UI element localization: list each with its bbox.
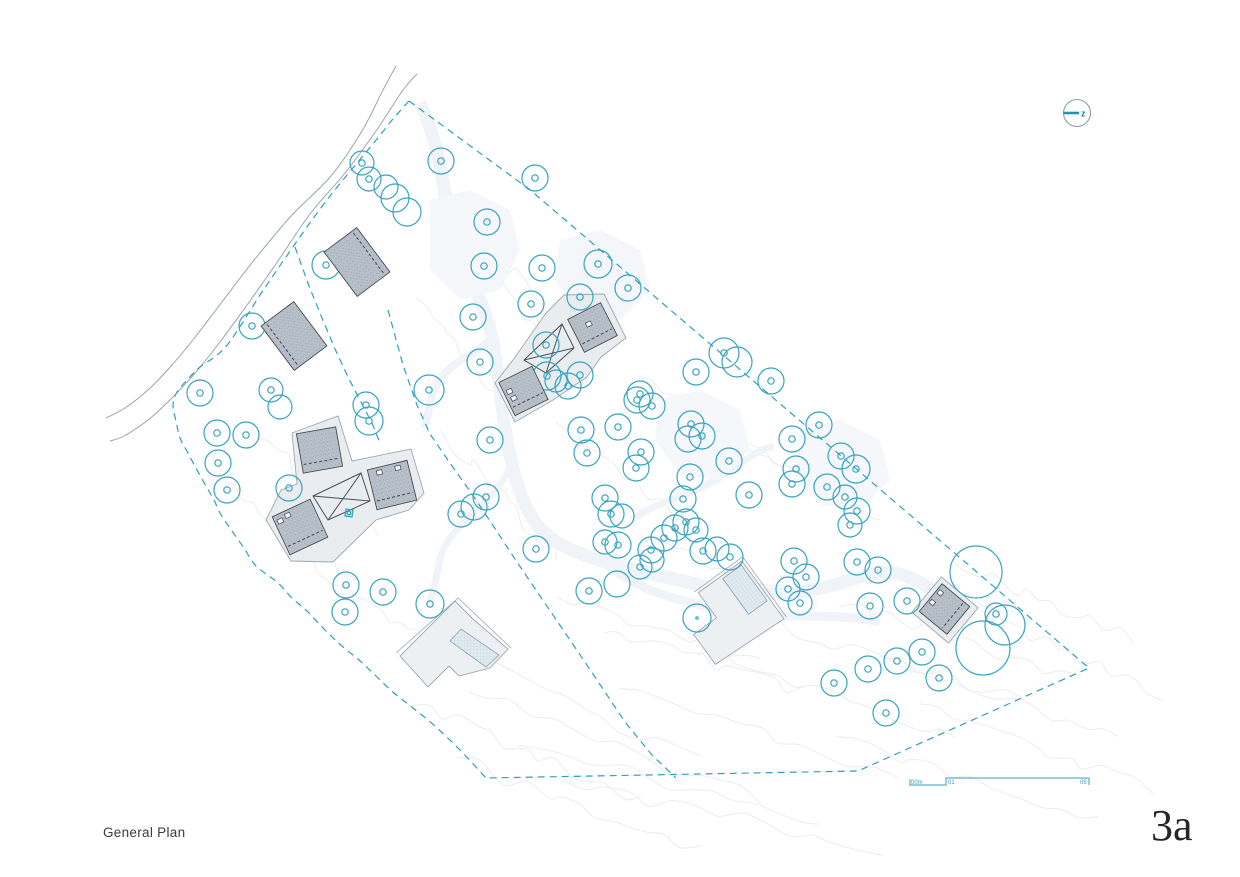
svg-text:00m: 00m: [911, 780, 923, 786]
svg-text:z: z: [1081, 109, 1086, 119]
svg-text:01: 01: [948, 780, 955, 786]
svg-text:General Plan: General Plan: [103, 825, 185, 840]
svg-text:05: 05: [1080, 780, 1087, 786]
svg-text:3a: 3a: [1151, 801, 1193, 850]
